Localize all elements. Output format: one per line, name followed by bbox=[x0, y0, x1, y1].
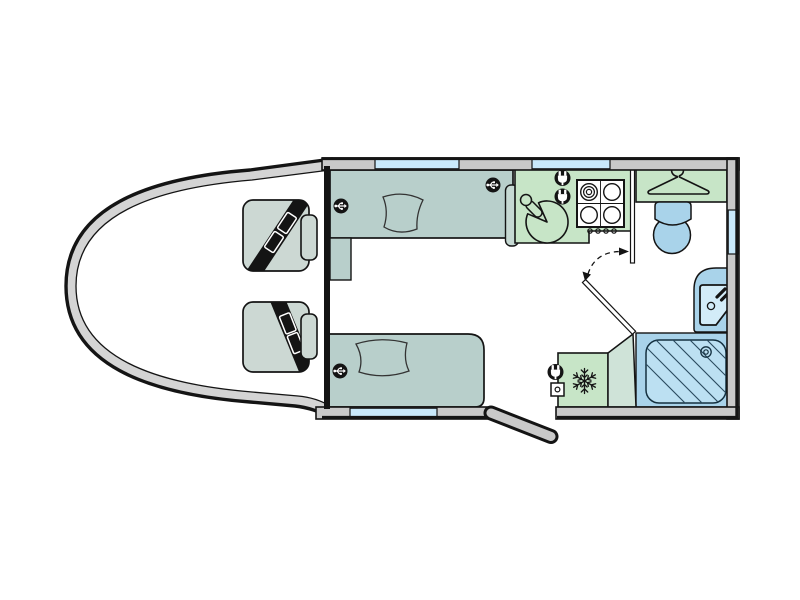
sofa-top-side-unit bbox=[330, 238, 351, 280]
wardrobe bbox=[636, 166, 727, 202]
window-top-2 bbox=[532, 159, 610, 169]
usb-outlet-icon bbox=[333, 364, 348, 379]
basin-drain bbox=[707, 302, 714, 309]
door-jamb bbox=[631, 166, 635, 263]
cab-seat-top bbox=[243, 193, 317, 276]
motorhome-floorplan bbox=[0, 0, 800, 600]
shower-tray bbox=[646, 340, 726, 403]
floorplan-canvas bbox=[0, 0, 800, 600]
wardrobe-cabinet bbox=[636, 166, 727, 202]
power-outlet-icon bbox=[555, 170, 571, 186]
toilet-cistern bbox=[655, 202, 691, 225]
entry-door-flap bbox=[491, 413, 551, 437]
cab-shell bbox=[66, 159, 332, 418]
usb-outlet-icon bbox=[334, 199, 349, 214]
usb-outlet-icon bbox=[486, 178, 501, 193]
power-outlet-icon bbox=[548, 364, 564, 380]
seat-headrest bbox=[301, 314, 317, 359]
sink-tap-base bbox=[521, 195, 532, 206]
mains-socket-icon bbox=[551, 383, 564, 396]
hob-icon bbox=[577, 180, 624, 233]
toilet-icon bbox=[654, 202, 692, 254]
cab-partition-wall bbox=[324, 166, 330, 409]
window-top-1 bbox=[375, 159, 459, 169]
power-outlet-icon bbox=[555, 189, 571, 205]
seat-headrest bbox=[301, 215, 317, 260]
cab-seat-bottom bbox=[243, 296, 317, 374]
shower-room bbox=[618, 333, 780, 413]
